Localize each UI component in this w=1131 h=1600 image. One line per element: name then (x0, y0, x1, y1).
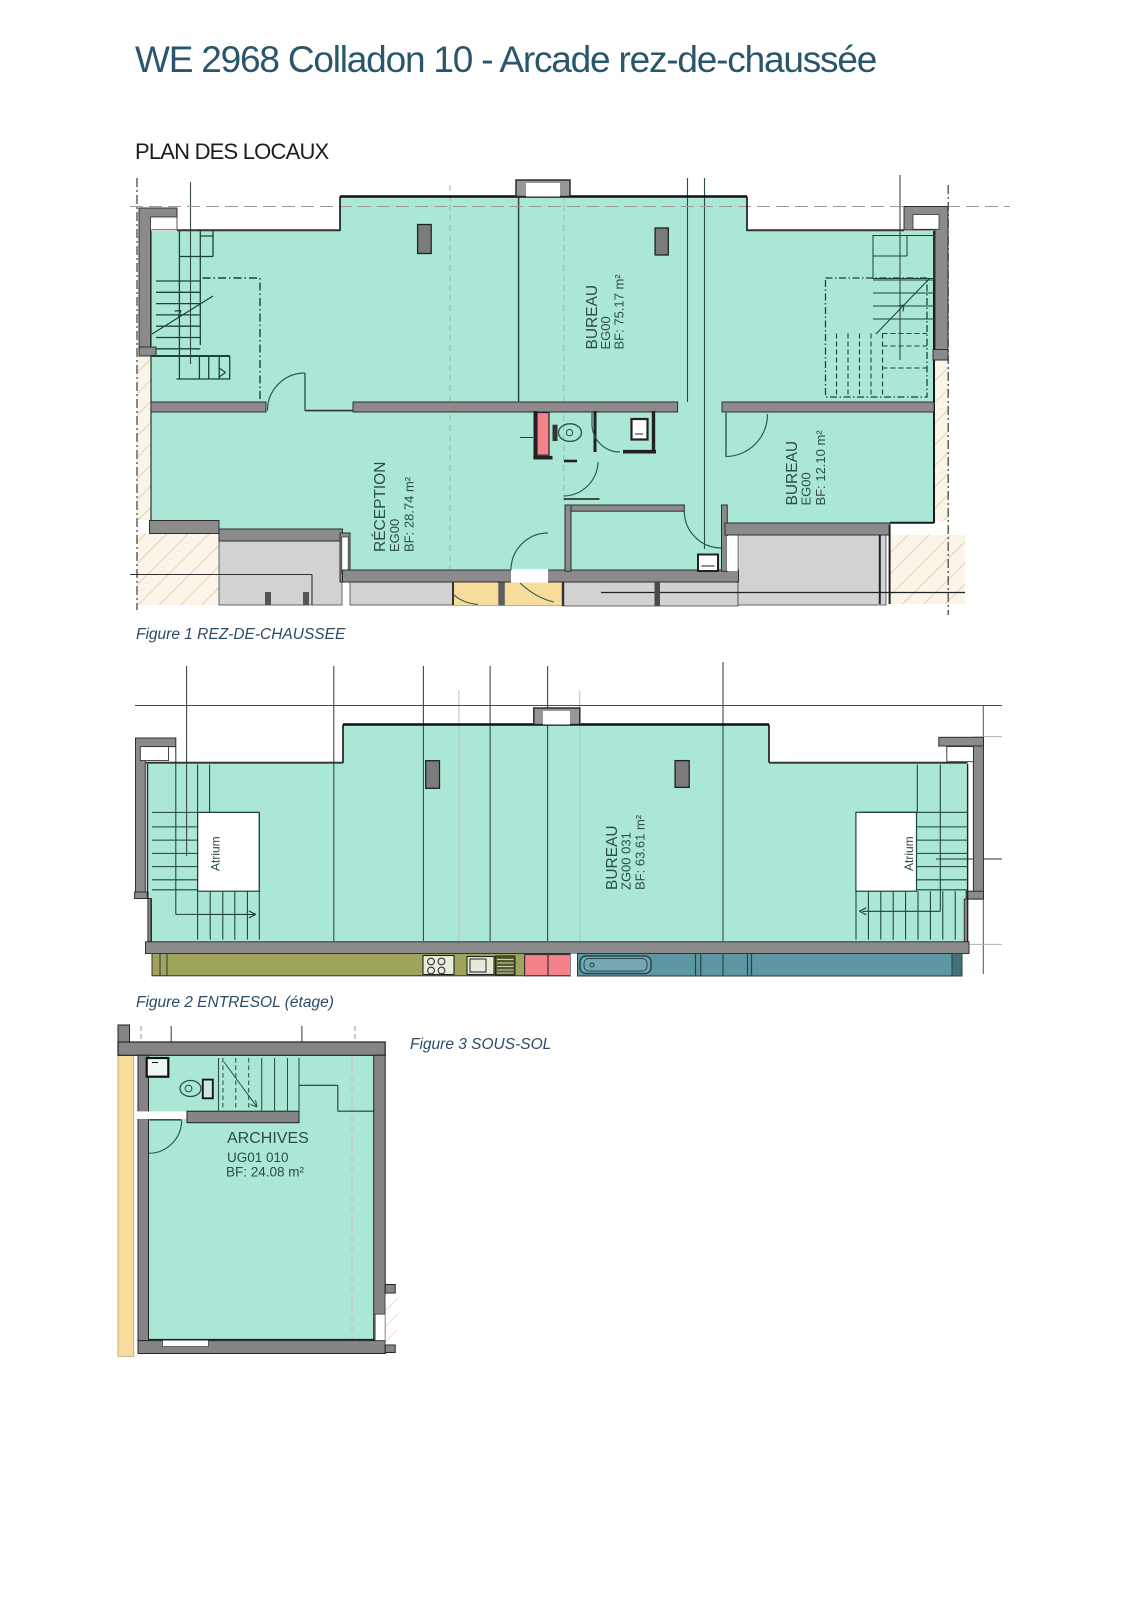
svg-text:Atrium: Atrium (209, 836, 223, 871)
svg-text:EG00: EG00 (387, 519, 402, 552)
svg-text:ARCHIVES: ARCHIVES (227, 1130, 309, 1147)
svg-text:EG00: EG00 (799, 472, 814, 505)
svg-text:ZG00 031: ZG00 031 (619, 832, 634, 890)
svg-text:BF: 63.61 m²: BF: 63.61 m² (633, 814, 648, 890)
svg-text:BF: 24.08 m²: BF: 24.08 m² (226, 1165, 305, 1180)
svg-text:Atrium: Atrium (902, 836, 916, 871)
svg-text:UG01 010: UG01 010 (227, 1150, 289, 1165)
svg-text:BF: 75.17 m²: BF: 75.17 m² (612, 274, 627, 350)
svg-text:BF: 12.10 m²: BF: 12.10 m² (813, 430, 828, 506)
svg-text:BF: 28.74 m²: BF: 28.74 m² (402, 476, 417, 552)
